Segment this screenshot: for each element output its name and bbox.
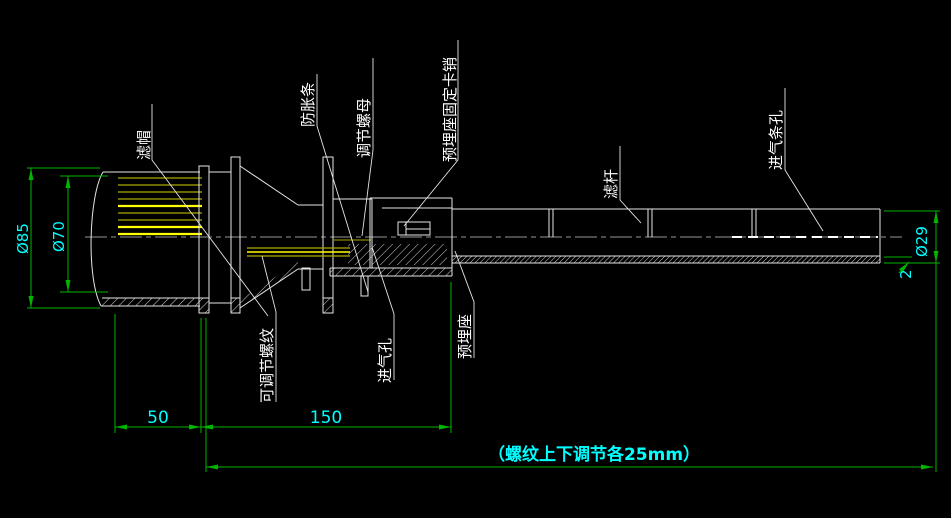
dim-dia85: Ø85	[14, 223, 32, 254]
label-filter-cap: 滤帽	[135, 130, 153, 160]
dim-wall-2: 2	[897, 269, 915, 279]
flange-and-cone-stack	[199, 157, 333, 313]
cad-drawing: 滤帽 防胀条 调节螺母 预埋座固定卡销 滤杆 进气条孔 可调节螺纹 进气孔 预埋…	[0, 0, 951, 518]
label-air-inlet-hole: 进气孔	[376, 338, 394, 383]
dim-dia29: Ø29	[913, 226, 931, 257]
label-embedded-seat: 预埋座	[456, 314, 474, 359]
embedded-seat-body	[302, 198, 452, 296]
dim-dia70: Ø70	[50, 221, 68, 252]
label-filter-rod: 滤杆	[602, 169, 620, 199]
label-adjusting-nut: 调节螺母	[355, 98, 373, 158]
label-anti-expansion-strip: 防胀条	[299, 82, 317, 127]
dim-50: 50	[147, 408, 169, 428]
leader-lines	[152, 40, 823, 402]
cap-air-slots	[118, 178, 202, 234]
adjustable-thread-lines	[247, 248, 350, 256]
label-adjustable-thread: 可调节螺纹	[258, 328, 276, 403]
filter-rod-tube	[452, 209, 880, 263]
dim-150: 150	[310, 408, 342, 428]
dim-thread-note: （螺纹上下调节各25mm）	[488, 444, 700, 465]
seat-fixing-pin	[398, 222, 430, 235]
label-air-inlet-slots: 进气条孔	[767, 110, 785, 170]
cad-canvas: 滤帽 防胀条 调节螺母 预埋座固定卡销 滤杆 进气条孔 可调节螺纹 进气孔 预埋…	[0, 0, 951, 518]
label-seat-fixing-pin: 预埋座固定卡销	[441, 57, 459, 162]
part-labels: 滤帽 防胀条 调节螺母 预埋座固定卡销 滤杆 进气条孔 可调节螺纹 进气孔 预埋…	[135, 57, 785, 403]
